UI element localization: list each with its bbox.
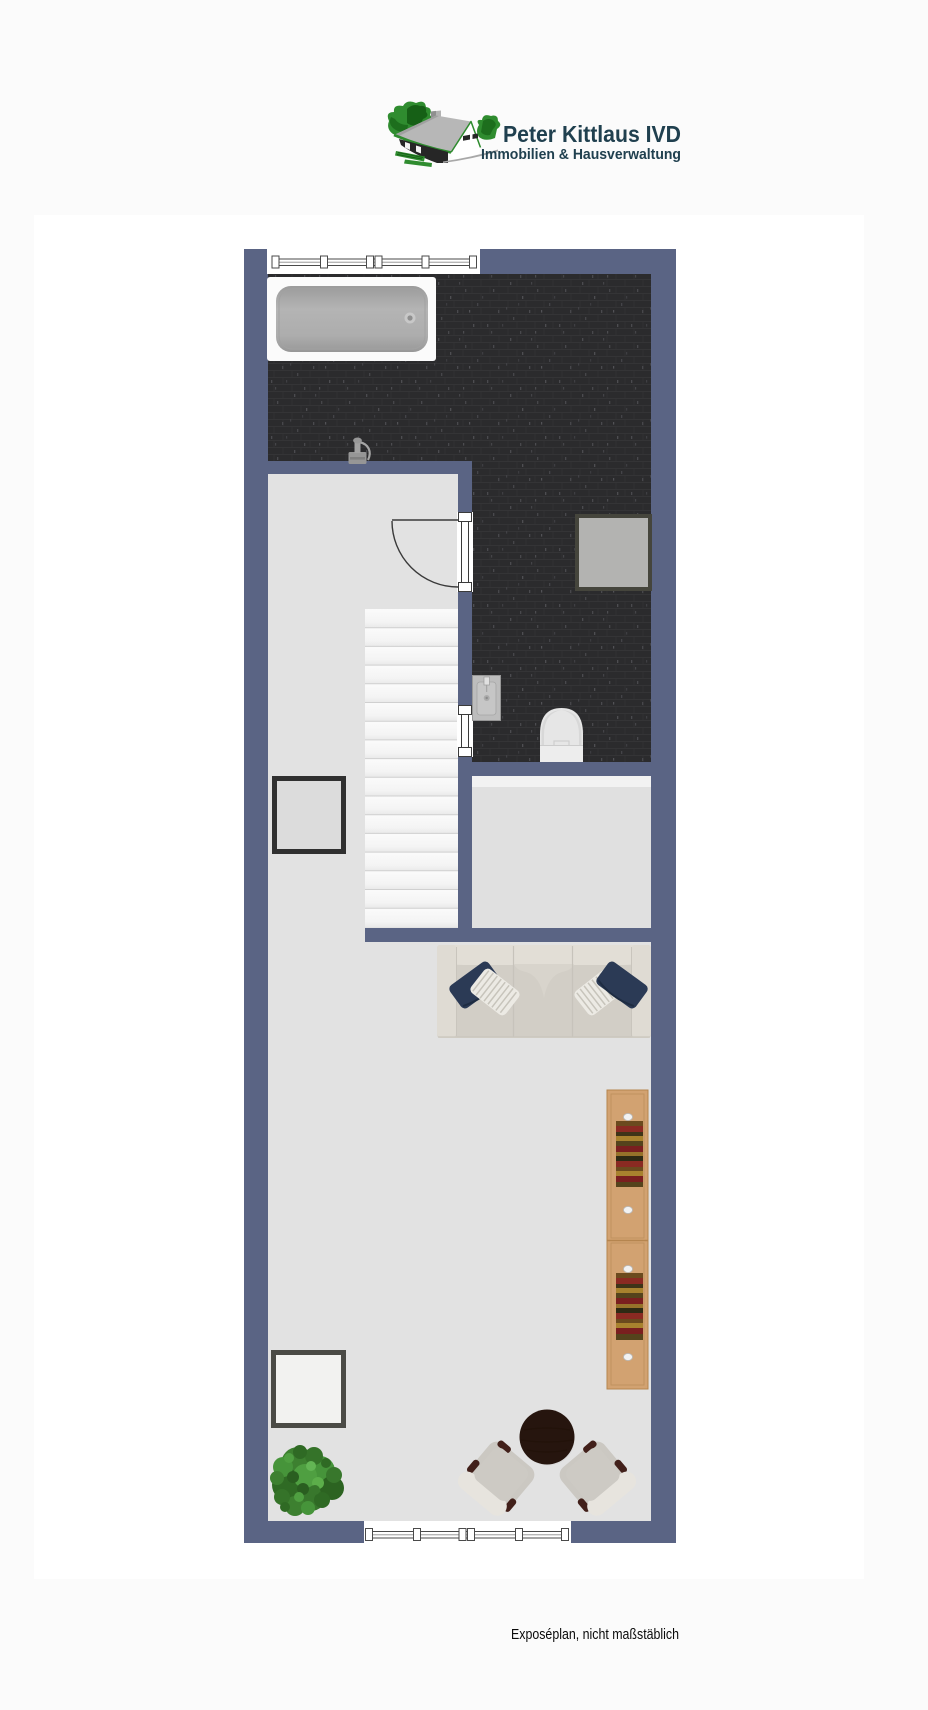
- svg-text:Immobilien & Hausverwaltung: Immobilien & Hausverwaltung: [481, 147, 681, 163]
- svg-text:Exposéplan, nicht maßstäblich: Exposéplan, nicht maßstäblich: [511, 1627, 679, 1643]
- svg-text:Peter Kittlaus IVD: Peter Kittlaus IVD: [503, 121, 681, 147]
